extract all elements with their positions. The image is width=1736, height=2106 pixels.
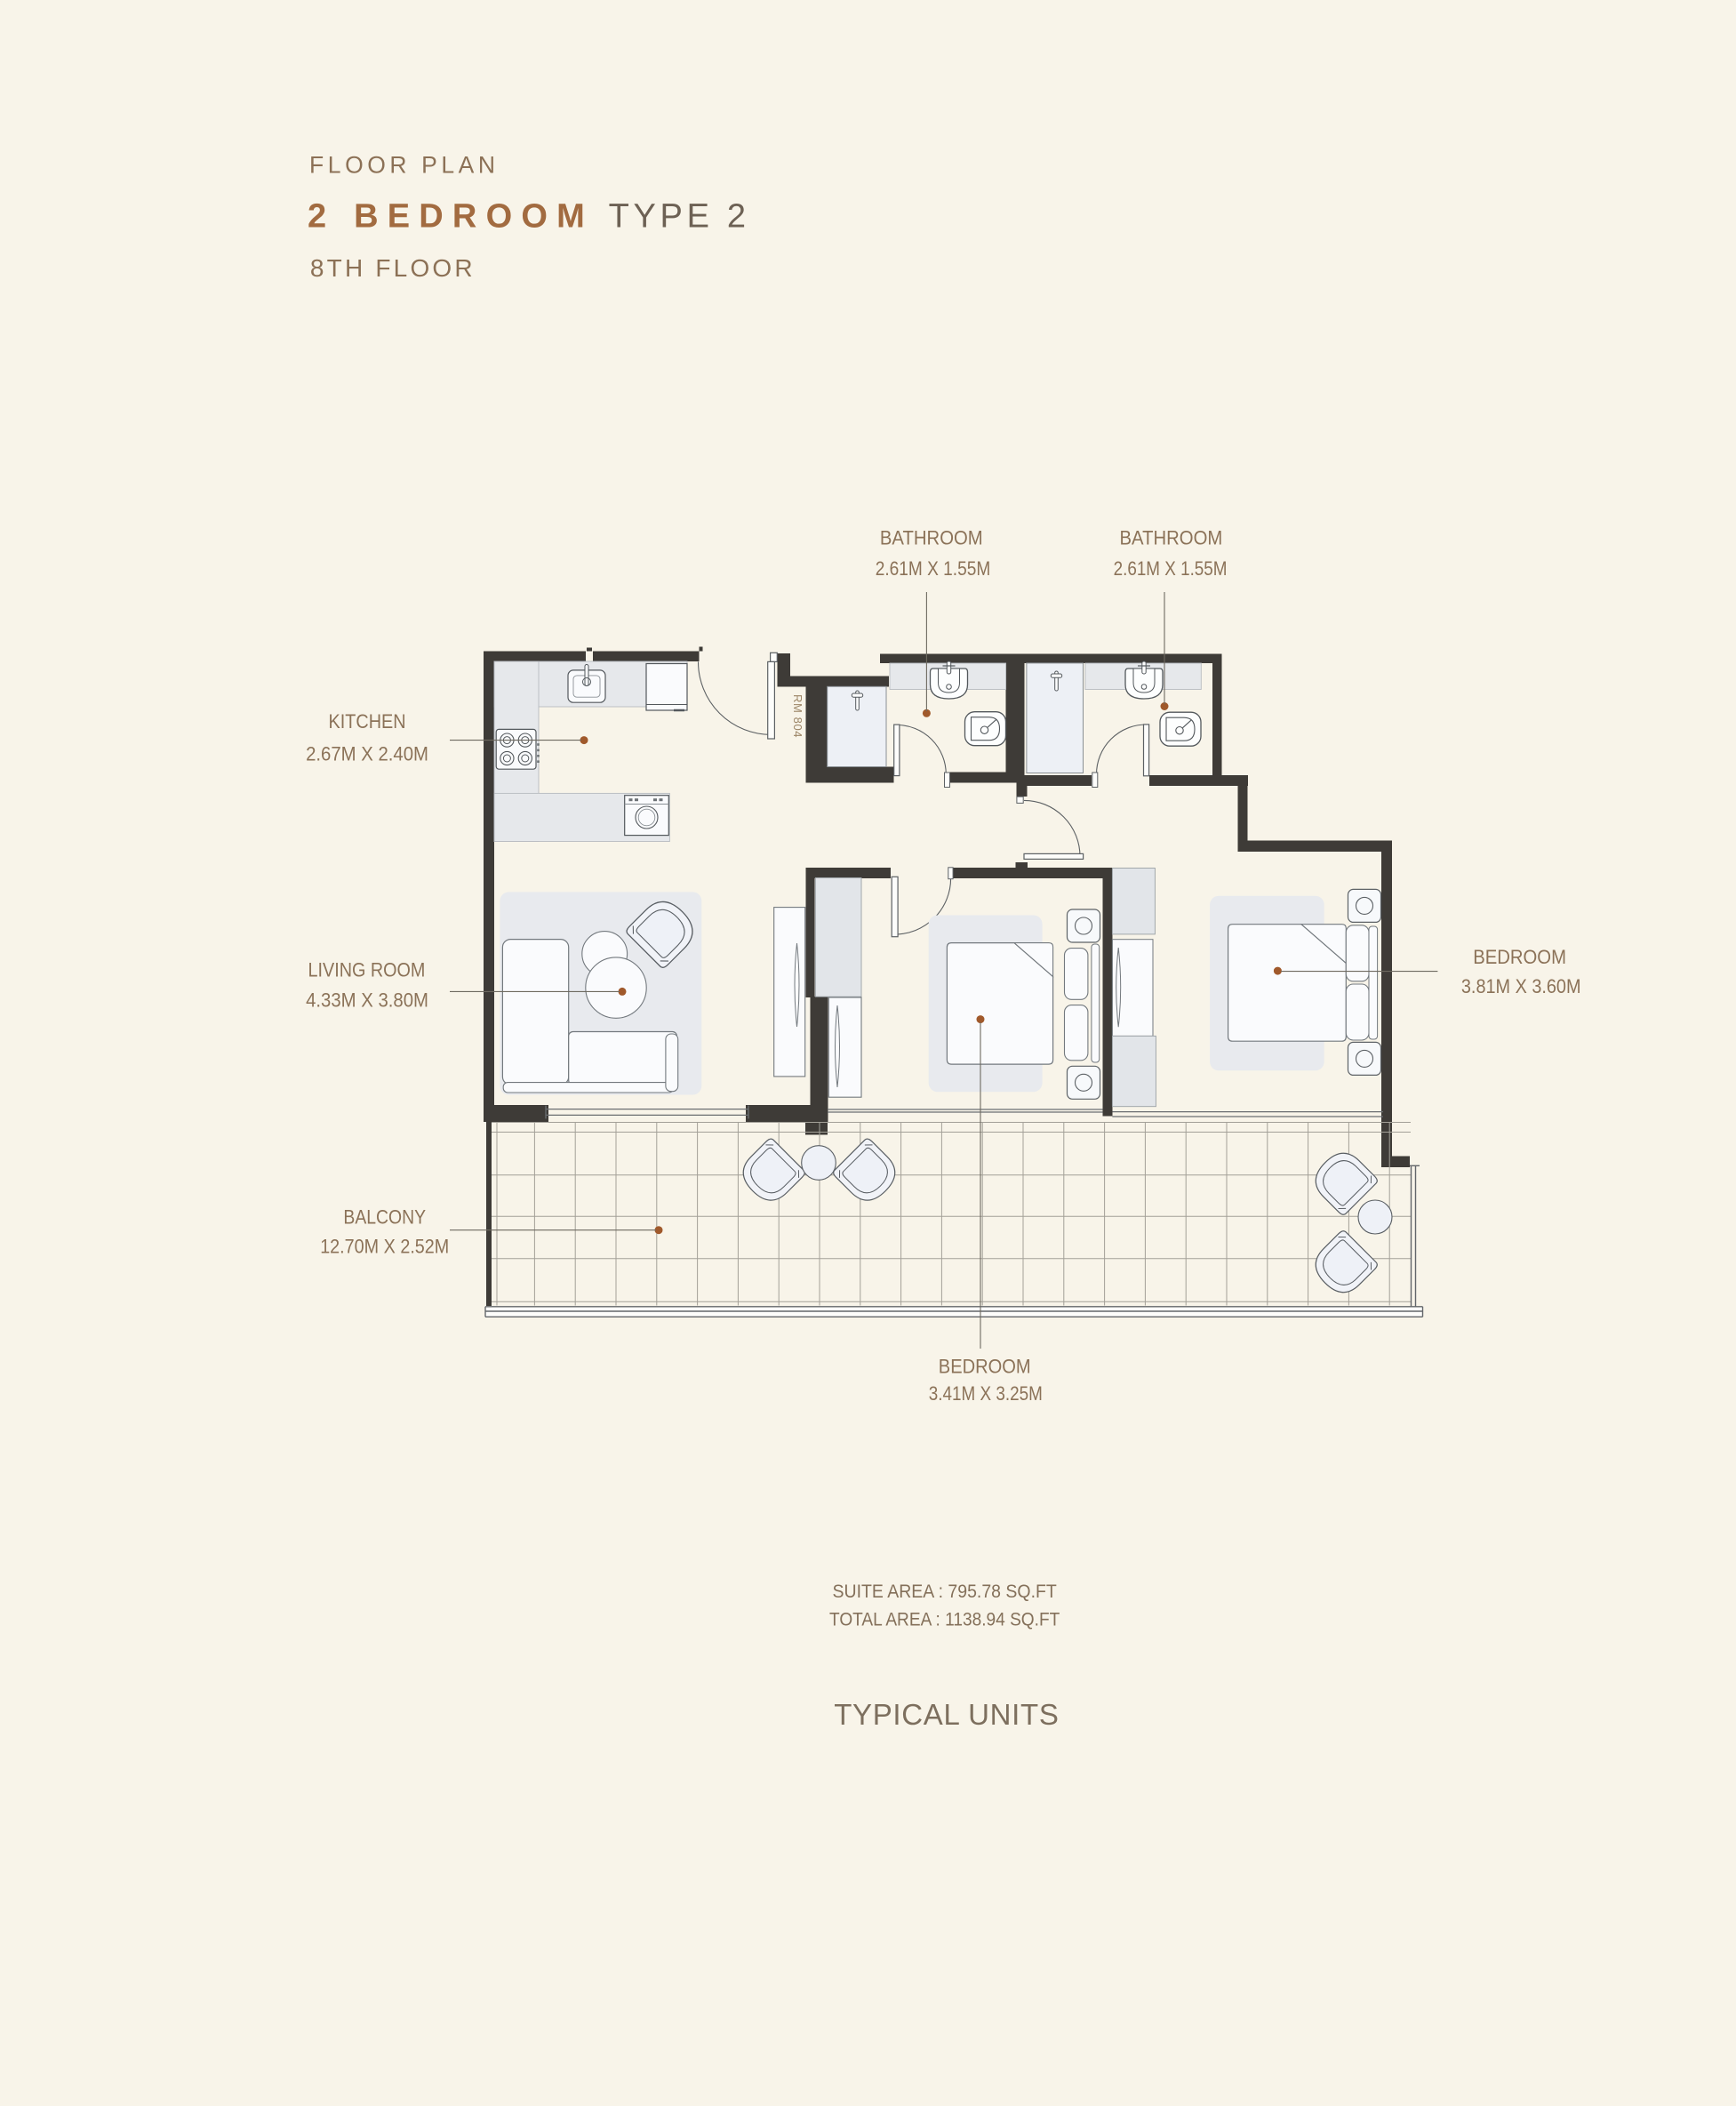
svg-text:BATHROOM: BATHROOM	[1120, 527, 1223, 549]
svg-text:2.67M X 2.40M: 2.67M X 2.40M	[306, 743, 428, 765]
svg-text:TOTAL AREA : 1138.94 SQ.FT: TOTAL AREA : 1138.94 SQ.FT	[829, 1610, 1060, 1630]
svg-text:RM 804: RM 804	[791, 694, 804, 738]
svg-text:2.61M X 1.55M: 2.61M X 1.55M	[876, 557, 991, 580]
svg-text:3.81M X 3.60M: 3.81M X 3.60M	[1461, 975, 1581, 997]
svg-text:BEDROOM: BEDROOM	[939, 1356, 1031, 1378]
svg-text:SUITE AREA : 795.78 SQ.FT: SUITE AREA : 795.78 SQ.FT	[833, 1582, 1057, 1602]
svg-text:BATHROOM: BATHROOM	[880, 527, 983, 549]
svg-text:4.33M X 3.80M: 4.33M X 3.80M	[306, 989, 428, 1012]
svg-text:2.61M X 1.55M: 2.61M X 1.55M	[1114, 557, 1228, 580]
svg-text:BEDROOM: BEDROOM	[1473, 946, 1566, 968]
svg-text:TYPE 2: TYPE 2	[609, 198, 750, 236]
svg-text:3.41M X 3.25M: 3.41M X 3.25M	[929, 1382, 1043, 1405]
svg-text:2 BEDROOM: 2 BEDROOM	[308, 198, 594, 236]
svg-text:LIVING ROOM: LIVING ROOM	[308, 959, 426, 981]
svg-text:KITCHEN: KITCHEN	[329, 710, 406, 733]
svg-text:FLOOR PLAN: FLOOR PLAN	[309, 152, 500, 179]
svg-text:BALCONY: BALCONY	[343, 1205, 426, 1228]
svg-text:8TH FLOOR: 8TH FLOOR	[310, 254, 476, 282]
svg-text:TYPICAL UNITS: TYPICAL UNITS	[834, 1698, 1059, 1731]
svg-text:12.70M X 2.52M: 12.70M X 2.52M	[320, 1236, 449, 1258]
